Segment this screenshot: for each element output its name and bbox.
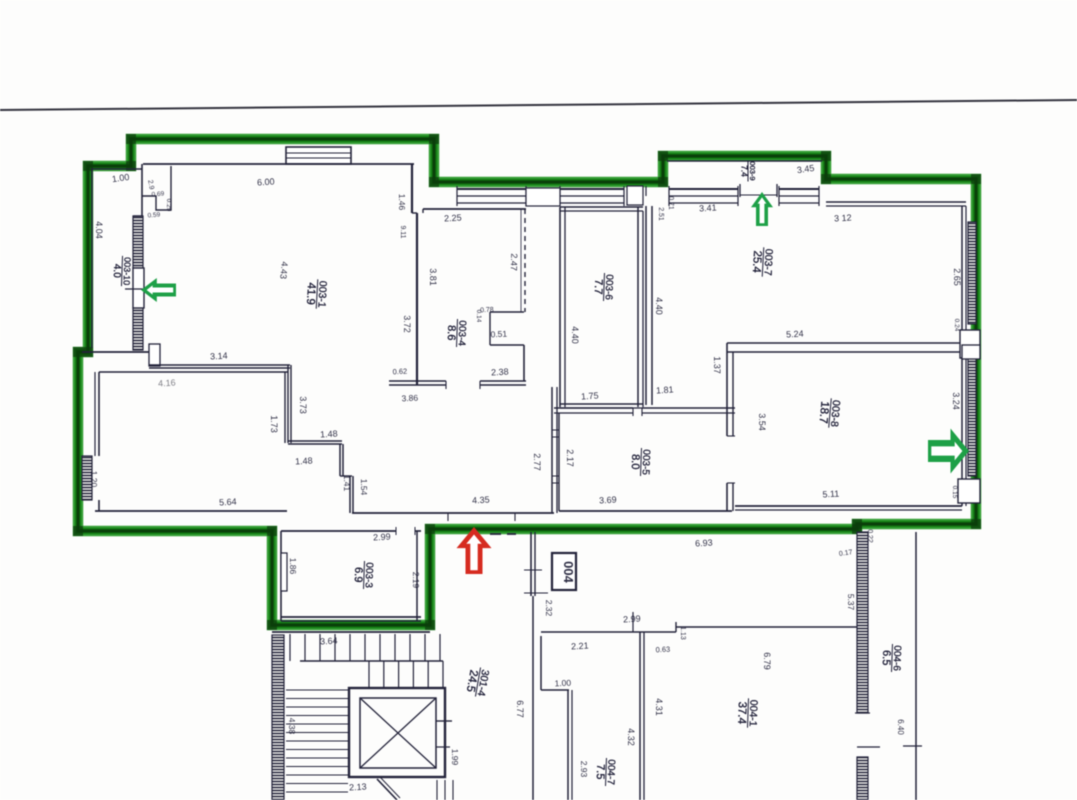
- svg-text:37.4: 37.4: [735, 701, 748, 724]
- svg-text:3.86: 3.86: [401, 393, 418, 404]
- svg-text:5.11: 5.11: [822, 489, 839, 500]
- svg-text:1.20: 1.20: [89, 471, 99, 488]
- svg-text:1.73: 1.73: [269, 415, 279, 433]
- svg-text:3.41: 3.41: [699, 203, 717, 214]
- svg-text:4.40: 4.40: [654, 297, 664, 315]
- svg-text:5.64: 5.64: [219, 497, 237, 508]
- svg-text:6.77: 6.77: [515, 700, 525, 718]
- svg-text:4.35: 4.35: [472, 495, 490, 506]
- svg-text:1.99: 1.99: [450, 749, 460, 766]
- svg-text:0.24: 0.24: [953, 319, 960, 332]
- svg-text:0.63: 0.63: [655, 645, 670, 655]
- svg-text:2.99: 2.99: [373, 532, 391, 543]
- svg-text:6.93: 6.93: [695, 538, 713, 549]
- svg-text:4.0: 4.0: [111, 264, 122, 279]
- svg-text:2.25: 2.25: [444, 213, 462, 224]
- svg-text:2.93: 2.93: [579, 761, 589, 778]
- svg-text:0.22: 0.22: [866, 529, 873, 543]
- svg-text:0.14: 0.14: [475, 310, 482, 323]
- svg-text:41.9: 41.9: [304, 282, 317, 305]
- svg-text:2.51: 2.51: [657, 207, 664, 221]
- svg-text:4.32: 4.32: [626, 728, 636, 746]
- svg-text:6.79: 6.79: [762, 652, 772, 670]
- svg-text:2.65: 2.65: [952, 268, 962, 286]
- svg-text:4.31: 4.31: [654, 698, 664, 716]
- svg-text:0.69: 0.69: [151, 190, 165, 198]
- svg-text:1.48: 1.48: [295, 456, 313, 467]
- svg-text:1.81: 1.81: [656, 384, 674, 395]
- svg-text:0.51: 0.51: [490, 329, 507, 340]
- svg-text:6.9: 6.9: [352, 567, 365, 583]
- svg-text:9.11: 9.11: [399, 225, 406, 238]
- svg-text:0.15: 0.15: [951, 486, 958, 499]
- svg-text:1.46: 1.46: [397, 194, 407, 211]
- svg-text:7.7: 7.7: [592, 279, 605, 295]
- svg-text:4.38: 4.38: [287, 718, 297, 735]
- svg-text:6.00: 6.00: [257, 176, 275, 187]
- svg-text:3.24: 3.24: [951, 392, 961, 410]
- svg-text:0.59: 0.59: [147, 211, 161, 219]
- svg-text:7.5: 7.5: [594, 764, 607, 780]
- svg-text:3.72: 3.72: [402, 315, 412, 333]
- svg-text:6.40: 6.40: [896, 719, 905, 735]
- svg-text:1.00: 1.00: [554, 678, 571, 689]
- svg-text:8.6: 8.6: [445, 325, 458, 341]
- svg-text:3.81: 3.81: [428, 268, 438, 286]
- svg-text:2.17: 2.17: [565, 449, 575, 467]
- svg-text:4.43: 4.43: [278, 261, 289, 279]
- svg-text:7.4: 7.4: [740, 165, 750, 177]
- svg-text:3.73: 3.73: [298, 396, 308, 414]
- svg-text:2.21: 2.21: [571, 641, 589, 652]
- svg-text:3.14: 3.14: [210, 351, 228, 362]
- svg-text:3.54: 3.54: [757, 413, 767, 431]
- svg-text:3.64: 3.64: [320, 636, 338, 647]
- svg-text:2.13: 2.13: [349, 782, 367, 793]
- svg-text:003-10: 003-10: [122, 257, 133, 285]
- svg-text:1.13: 1.13: [679, 626, 686, 640]
- svg-text:5.37: 5.37: [846, 594, 856, 611]
- svg-text:2.99: 2.99: [623, 614, 641, 625]
- svg-text:8.0: 8.0: [629, 454, 642, 470]
- svg-text:25.4: 25.4: [750, 250, 763, 274]
- svg-text:6.5: 6.5: [880, 650, 893, 666]
- svg-text:4.16: 4.16: [158, 378, 176, 389]
- svg-text:3 12: 3 12: [834, 213, 852, 224]
- svg-text:2.32: 2.32: [544, 600, 554, 617]
- svg-text:2.19: 2.19: [411, 572, 421, 589]
- svg-text:4.04: 4.04: [94, 221, 104, 239]
- svg-text:1.75: 1.75: [581, 390, 599, 401]
- svg-text:3.69: 3.69: [599, 495, 617, 506]
- svg-text:1.48: 1.48: [320, 429, 338, 440]
- svg-text:4.40: 4.40: [570, 326, 580, 344]
- svg-text:2.77: 2.77: [532, 453, 542, 471]
- svg-text:0.29: 0.29: [165, 199, 172, 212]
- svg-text:2.47: 2.47: [509, 253, 520, 271]
- svg-text:0.62: 0.62: [392, 367, 407, 377]
- svg-text:004: 004: [561, 561, 576, 583]
- svg-text:1.54: 1.54: [359, 479, 369, 496]
- svg-text:18.7: 18.7: [817, 401, 831, 424]
- svg-text:0.71: 0.71: [667, 196, 674, 210]
- svg-text:2.38: 2.38: [491, 367, 509, 378]
- svg-text:1.86: 1.86: [288, 558, 298, 575]
- svg-text:1.37: 1.37: [712, 356, 722, 374]
- svg-text:1.41: 1.41: [342, 475, 352, 492]
- svg-text:5.24: 5.24: [786, 329, 804, 340]
